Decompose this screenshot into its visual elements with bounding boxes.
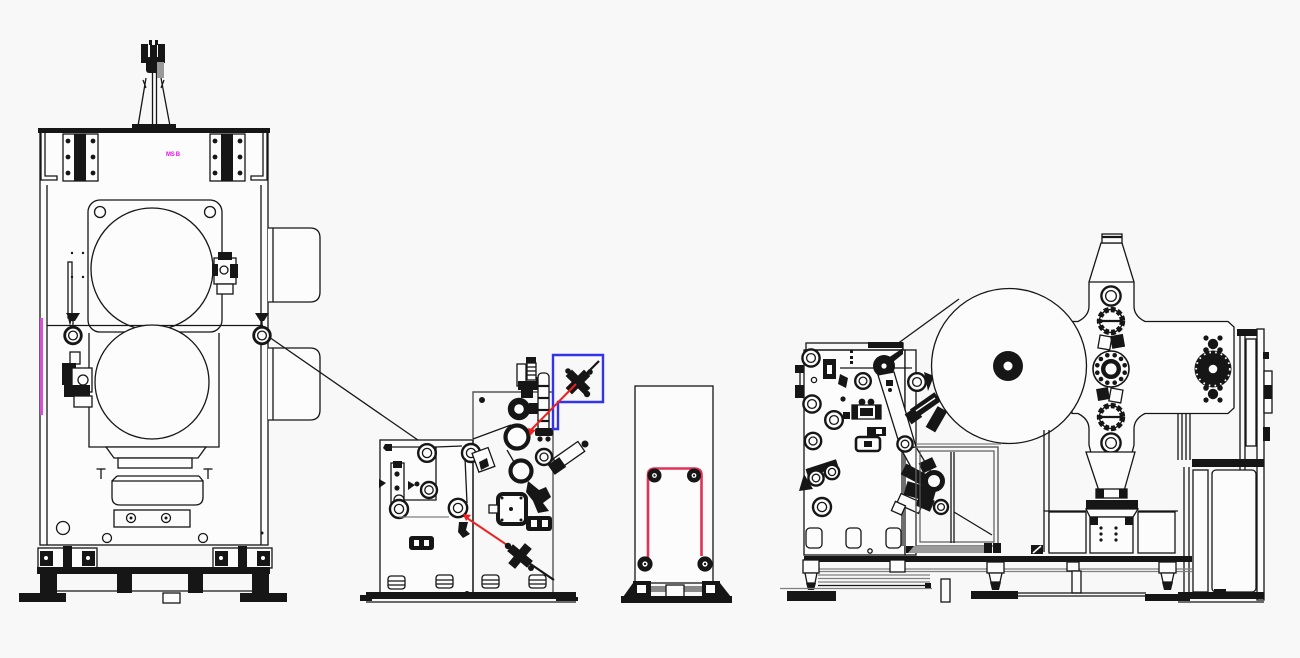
svg-text:MS B: MS B bbox=[166, 152, 181, 158]
